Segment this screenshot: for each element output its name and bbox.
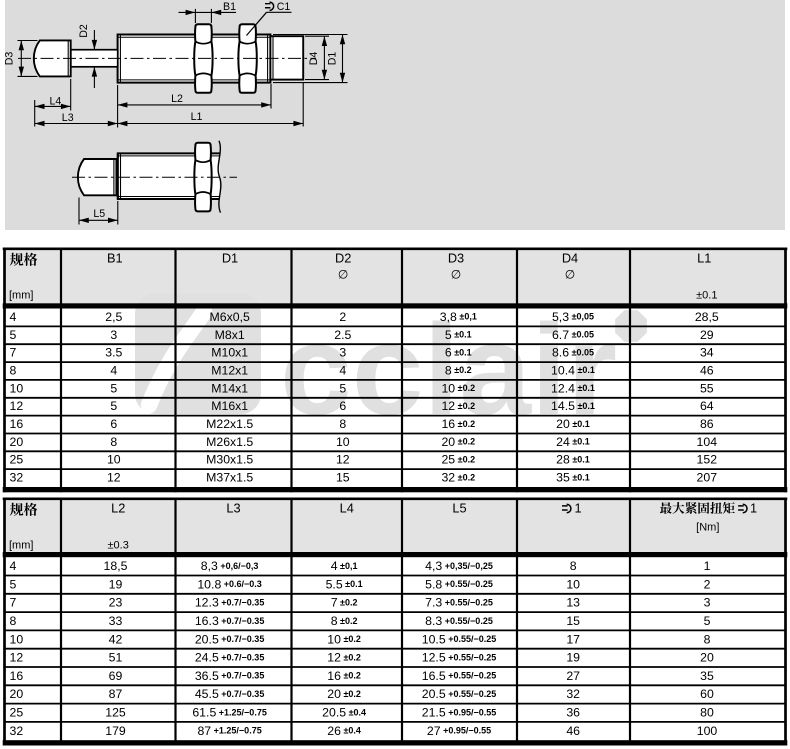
- svg-text:8: 8: [570, 559, 577, 573]
- svg-text:12±0.2: 12±0.2: [327, 651, 361, 665]
- svg-text:8: 8: [110, 435, 117, 449]
- svg-text:D3: D3: [448, 251, 464, 266]
- svg-text:10: 10: [107, 453, 121, 467]
- svg-text:5: 5: [704, 614, 711, 628]
- svg-text:27: 27: [566, 669, 580, 683]
- svg-text:8: 8: [10, 614, 17, 628]
- svg-text:D4: D4: [308, 52, 320, 66]
- svg-text:25±0.2: 25±0.2: [441, 453, 475, 467]
- svg-text:M6x0,5: M6x0,5: [210, 310, 250, 324]
- svg-text:36.5+0.7/−0.35: 36.5+0.7/−0.35: [195, 669, 264, 683]
- svg-text:16.5+0.55/−0.25: 16.5+0.55/−0.25: [422, 669, 496, 683]
- svg-text:4: 4: [339, 363, 346, 377]
- svg-text:10.5+0.55/−0.25: 10.5+0.55/−0.25: [422, 632, 496, 646]
- svg-text:D2: D2: [78, 24, 90, 38]
- svg-text:5.8+0.55/−0.25: 5.8+0.55/−0.25: [425, 577, 493, 591]
- svg-text:24±0.1: 24±0.1: [556, 435, 590, 449]
- svg-text:19: 19: [566, 651, 580, 665]
- svg-text:10: 10: [566, 577, 580, 591]
- svg-text:32: 32: [10, 471, 24, 485]
- svg-text:L1: L1: [191, 111, 203, 123]
- svg-text:2: 2: [339, 310, 346, 324]
- svg-text:M37x1.5: M37x1.5: [206, 471, 253, 485]
- svg-text:12: 12: [10, 399, 24, 413]
- svg-text:46: 46: [700, 363, 714, 377]
- svg-text:±0.3: ±0.3: [108, 540, 129, 552]
- svg-text:7±0.2: 7±0.2: [331, 596, 358, 610]
- svg-text:12: 12: [336, 453, 350, 467]
- svg-text:5: 5: [10, 328, 17, 342]
- svg-text:10: 10: [10, 381, 24, 395]
- svg-text:L3: L3: [62, 112, 74, 124]
- svg-text:6: 6: [110, 417, 117, 431]
- svg-text:4±0,1: 4±0,1: [331, 559, 358, 573]
- svg-text:D1: D1: [327, 52, 339, 66]
- svg-text:∅: ∅: [565, 268, 576, 282]
- svg-text:20±0.2: 20±0.2: [327, 687, 361, 701]
- svg-text:87+1.25/−0.75: 87+1.25/−0.75: [197, 724, 261, 738]
- svg-text:24.5+0.7/−0.35: 24.5+0.7/−0.35: [195, 651, 264, 665]
- svg-text:10: 10: [10, 632, 24, 646]
- svg-text:32±0.2: 32±0.2: [441, 471, 475, 485]
- svg-text:20: 20: [10, 687, 24, 701]
- svg-text:17: 17: [566, 632, 580, 646]
- svg-text:5: 5: [110, 399, 117, 413]
- svg-text:19: 19: [109, 577, 123, 591]
- svg-text:28±0.1: 28±0.1: [556, 453, 590, 467]
- svg-text:21.5+0.95/−0.55: 21.5+0.95/−0.55: [422, 706, 496, 720]
- svg-text:[Nm]: [Nm]: [696, 522, 719, 534]
- svg-text:L3: L3: [226, 501, 240, 516]
- svg-text:100: 100: [697, 724, 718, 738]
- svg-text:M22x1.5: M22x1.5: [206, 417, 253, 431]
- svg-text:152: 152: [697, 453, 718, 467]
- svg-text:51: 51: [109, 651, 123, 665]
- svg-text:26±0.4: 26±0.4: [327, 724, 361, 738]
- svg-text:8: 8: [704, 632, 711, 646]
- svg-text:3: 3: [339, 346, 346, 360]
- svg-text:8±0.2: 8±0.2: [331, 614, 358, 628]
- svg-text:±0.1: ±0.1: [696, 290, 717, 302]
- svg-text:16.3+0.7/−0.35: 16.3+0.7/−0.35: [195, 614, 264, 628]
- svg-text:45.5+0.7/−0.35: 45.5+0.7/−0.35: [195, 687, 264, 701]
- svg-text:12.3+0.7/−0.35: 12.3+0.7/−0.35: [195, 596, 264, 610]
- svg-text:M16x1: M16x1: [211, 399, 248, 413]
- svg-text:3.5: 3.5: [105, 346, 122, 360]
- svg-text:207: 207: [697, 471, 718, 485]
- svg-text:16: 16: [10, 417, 24, 431]
- svg-text:34: 34: [700, 346, 714, 360]
- svg-text:8.3+0.55/−0.25: 8.3+0.55/−0.25: [425, 614, 493, 628]
- svg-text:8,3+0,6/−0,3: 8,3+0,6/−0,3: [201, 559, 259, 573]
- svg-text:20.5±0.4: 20.5±0.4: [322, 706, 366, 720]
- svg-text:4,3+0,35/−0,25: 4,3+0,35/−0,25: [425, 559, 493, 573]
- svg-text:28,5: 28,5: [695, 310, 719, 324]
- svg-text:10: 10: [336, 435, 350, 449]
- svg-text:8: 8: [339, 417, 346, 431]
- svg-text:10.8+0.6/−0.3: 10.8+0.6/−0.3: [197, 577, 261, 591]
- svg-text:86: 86: [700, 417, 714, 431]
- svg-text:4: 4: [110, 363, 117, 377]
- svg-text:[mm]: [mm]: [9, 290, 33, 302]
- svg-text:[mm]: [mm]: [9, 540, 33, 552]
- svg-text:60: 60: [700, 687, 714, 701]
- svg-text:M8x1: M8x1: [215, 328, 245, 342]
- svg-text:B1: B1: [107, 251, 123, 266]
- svg-text:32: 32: [566, 687, 580, 701]
- svg-text:2: 2: [704, 577, 711, 591]
- svg-text:15: 15: [336, 471, 350, 485]
- svg-text:12.5+0.55/−0.25: 12.5+0.55/−0.25: [422, 651, 496, 665]
- svg-text:87: 87: [109, 687, 123, 701]
- svg-text:36: 36: [566, 706, 580, 720]
- svg-text:∅: ∅: [338, 268, 349, 282]
- svg-text:D3: D3: [4, 52, 16, 66]
- svg-text:2,5: 2,5: [105, 310, 122, 324]
- svg-text:61.5+1.25/−0.75: 61.5+1.25/−0.75: [192, 706, 266, 720]
- svg-text:20.5+0.7/−0.35: 20.5+0.7/−0.35: [195, 632, 264, 646]
- svg-text:32: 32: [10, 724, 24, 738]
- svg-text:L2: L2: [171, 93, 183, 105]
- svg-text:27+0.95/−0.55: 27+0.95/−0.55: [427, 724, 491, 738]
- svg-text:L1: L1: [697, 251, 711, 266]
- svg-text:23: 23: [109, 596, 123, 610]
- svg-text:5: 5: [110, 381, 117, 395]
- svg-text:55: 55: [700, 381, 714, 395]
- svg-text:4: 4: [10, 559, 17, 573]
- svg-text:35: 35: [700, 669, 714, 683]
- svg-text:69: 69: [109, 669, 123, 683]
- svg-text:M30x1.5: M30x1.5: [206, 453, 253, 467]
- svg-text:M14x1: M14x1: [211, 381, 248, 395]
- svg-text:3: 3: [704, 596, 711, 610]
- svg-text:12: 12: [10, 651, 24, 665]
- svg-text:B1: B1: [223, 1, 236, 13]
- svg-text:5: 5: [339, 381, 346, 395]
- svg-text:18,5: 18,5: [104, 559, 128, 573]
- svg-text:2.5: 2.5: [334, 328, 351, 342]
- svg-text:M10x1: M10x1: [211, 346, 248, 360]
- svg-text:35±0.1: 35±0.1: [556, 471, 590, 485]
- svg-text:16±0.2: 16±0.2: [327, 669, 361, 683]
- svg-text:15: 15: [566, 614, 580, 628]
- svg-text:D4: D4: [562, 251, 578, 266]
- svg-text:29: 29: [700, 328, 714, 342]
- svg-text:13: 13: [566, 596, 580, 610]
- svg-text:L4: L4: [50, 95, 62, 107]
- svg-text:10±0.2: 10±0.2: [327, 632, 361, 646]
- svg-text:D1: D1: [222, 251, 238, 266]
- svg-text:M26x1.5: M26x1.5: [206, 435, 253, 449]
- svg-text:∅: ∅: [451, 268, 462, 282]
- svg-text:25: 25: [10, 706, 24, 720]
- svg-text:25: 25: [10, 453, 24, 467]
- svg-text:7.3+0.55/−0.25: 7.3+0.55/−0.25: [425, 596, 493, 610]
- svg-text:L5: L5: [452, 501, 466, 516]
- svg-text:80: 80: [700, 706, 714, 720]
- svg-text:20: 20: [10, 435, 24, 449]
- svg-text:1: 1: [750, 501, 757, 516]
- svg-text:7: 7: [10, 596, 17, 610]
- svg-text:33: 33: [109, 614, 123, 628]
- svg-text:M12x1: M12x1: [211, 363, 248, 377]
- svg-text:179: 179: [105, 724, 126, 738]
- svg-text:4: 4: [10, 310, 17, 324]
- svg-text:L4: L4: [340, 501, 354, 516]
- svg-text:C1: C1: [277, 1, 291, 13]
- svg-text:D2: D2: [335, 251, 351, 266]
- svg-text:64: 64: [700, 399, 714, 413]
- svg-text:125: 125: [105, 706, 126, 720]
- svg-text:3: 3: [110, 328, 117, 342]
- svg-text:6: 6: [339, 399, 346, 413]
- svg-text:7: 7: [10, 346, 17, 360]
- svg-text:8: 8: [10, 363, 17, 377]
- svg-text:46: 46: [566, 724, 580, 738]
- svg-text:42: 42: [109, 632, 123, 646]
- svg-text:20: 20: [700, 651, 714, 665]
- svg-text:20±0.2: 20±0.2: [441, 435, 475, 449]
- svg-text:16: 16: [10, 669, 24, 683]
- svg-text:5.5±0.1: 5.5±0.1: [326, 577, 363, 591]
- svg-text:1: 1: [704, 559, 711, 573]
- svg-text:12: 12: [107, 471, 121, 485]
- svg-text:L2: L2: [111, 501, 125, 516]
- svg-text:5: 5: [10, 577, 17, 591]
- svg-text:104: 104: [697, 435, 718, 449]
- svg-text:1: 1: [574, 501, 581, 516]
- svg-text:L5: L5: [93, 208, 105, 220]
- svg-text:20.5+0.55/−0.25: 20.5+0.55/−0.25: [422, 687, 496, 701]
